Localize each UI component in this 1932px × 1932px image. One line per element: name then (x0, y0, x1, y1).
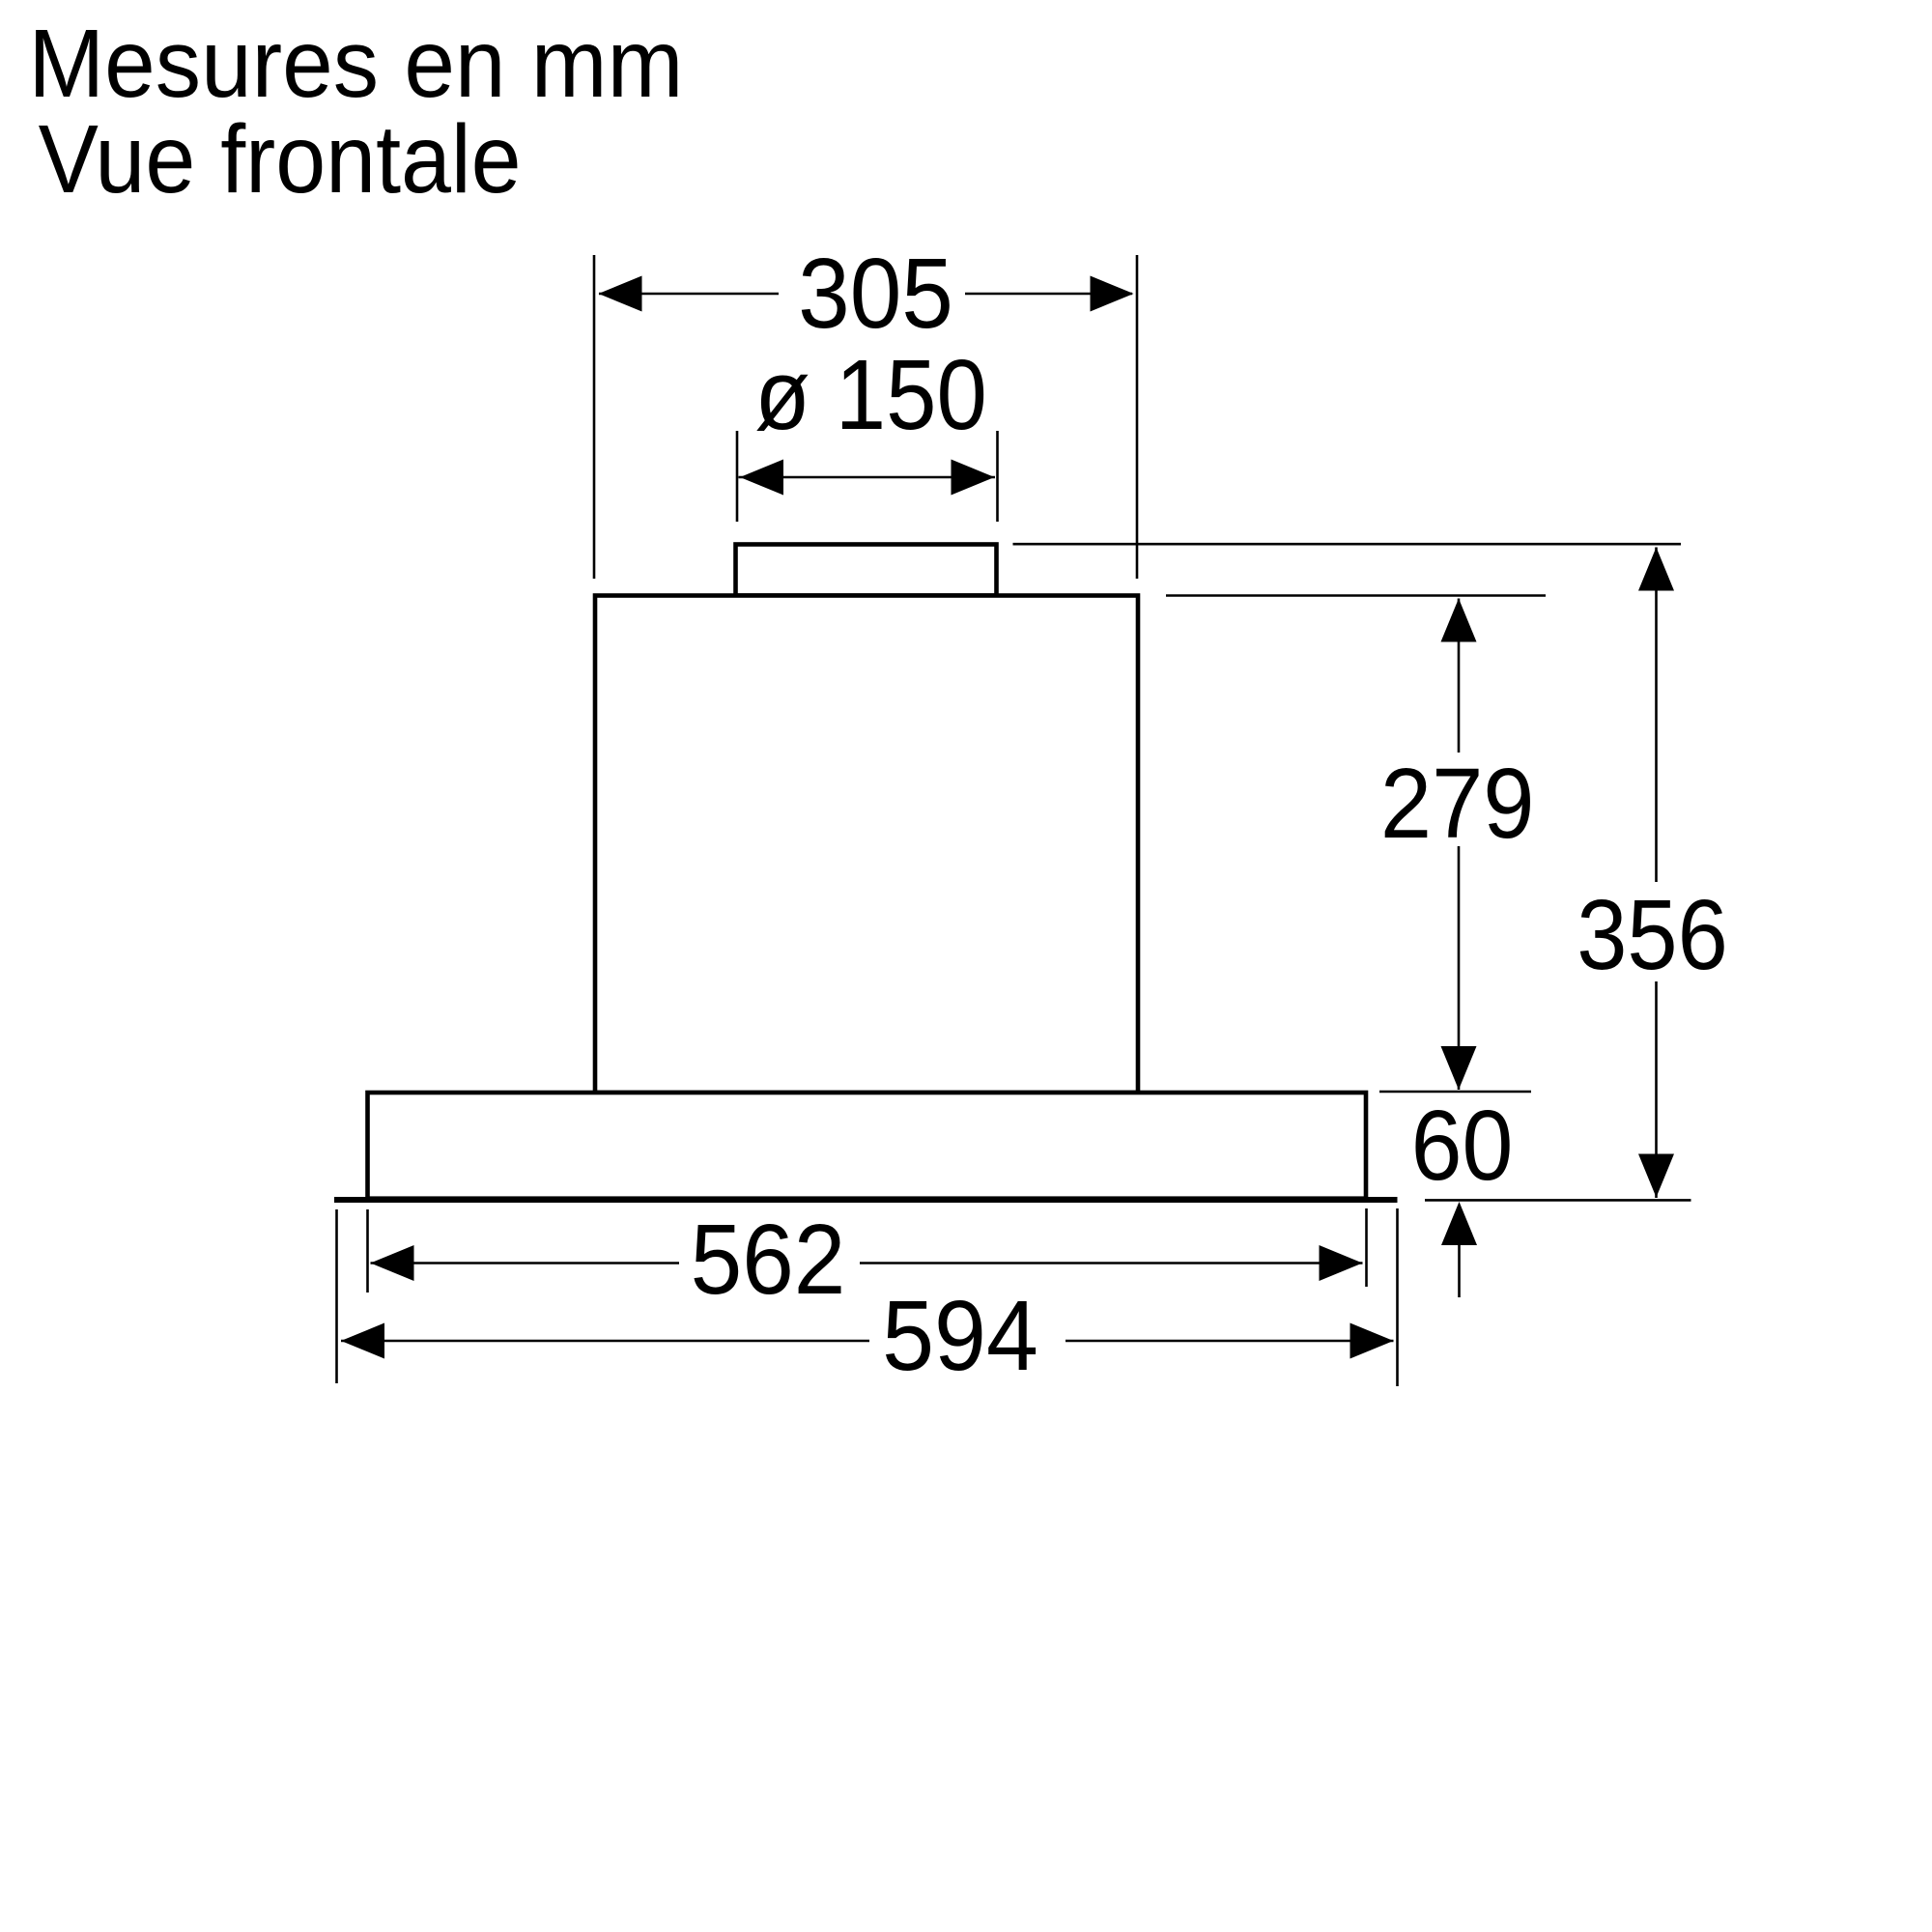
svg-text:Vue frontale: Vue frontale (39, 105, 522, 213)
svg-text:356: 356 (1577, 879, 1728, 990)
svg-text:Mesures en mm: Mesures en mm (28, 10, 683, 118)
svg-text:594: 594 (882, 1280, 1038, 1391)
svg-text:60: 60 (1411, 1090, 1514, 1201)
svg-text:ø 150: ø 150 (754, 339, 987, 450)
svg-text:562: 562 (691, 1204, 846, 1315)
svg-text:305: 305 (798, 238, 953, 349)
svg-text:279: 279 (1380, 748, 1535, 859)
